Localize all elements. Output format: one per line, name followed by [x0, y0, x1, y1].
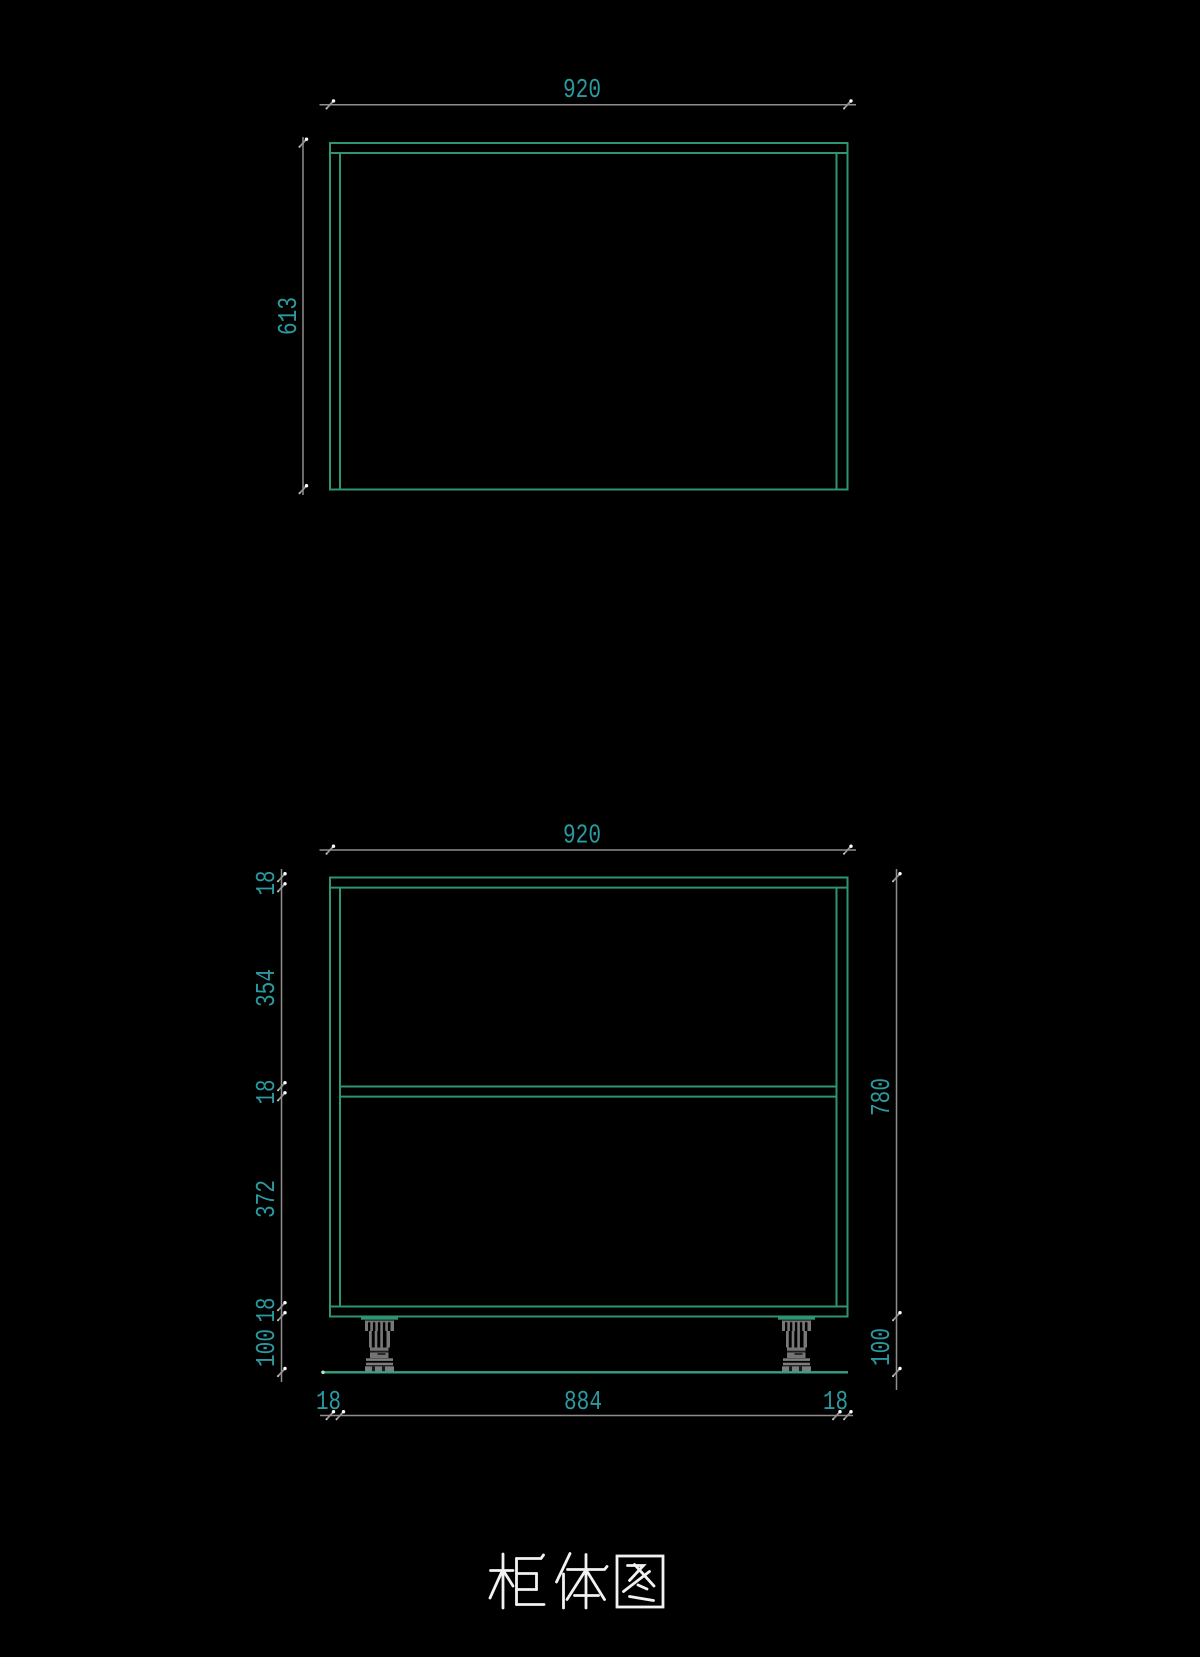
- svg-text:920: 920: [563, 76, 601, 106]
- svg-text:920: 920: [563, 822, 601, 852]
- svg-text:613: 613: [275, 297, 305, 335]
- svg-text:780: 780: [868, 1078, 898, 1116]
- svg-text:18: 18: [253, 1080, 283, 1105]
- svg-text:18: 18: [253, 1298, 283, 1323]
- svg-text:100: 100: [253, 1329, 283, 1367]
- svg-text:18: 18: [253, 871, 283, 896]
- svg-text:100: 100: [868, 1328, 898, 1366]
- svg-text:18: 18: [316, 1388, 341, 1418]
- svg-text:372: 372: [253, 1180, 283, 1218]
- svg-text:354: 354: [253, 969, 283, 1007]
- svg-text:18: 18: [823, 1388, 848, 1418]
- svg-text:884: 884: [564, 1388, 602, 1418]
